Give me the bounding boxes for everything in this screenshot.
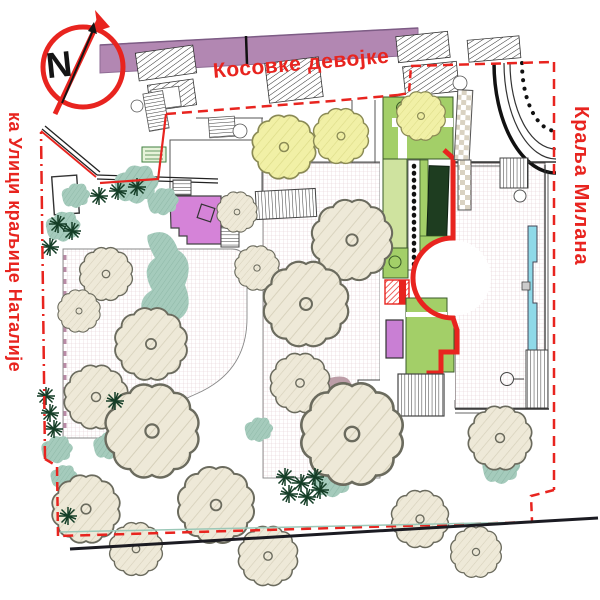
- street-label-right: Краља Милана: [569, 106, 592, 266]
- stairs: [526, 350, 548, 408]
- violet-bed: [386, 320, 403, 358]
- site-plan-drawing: [0, 0, 600, 600]
- column-dots: [522, 63, 556, 131]
- north-label: N: [44, 43, 74, 87]
- dark-hedge: [427, 166, 449, 237]
- stairs: [208, 116, 235, 138]
- colonnade-arc: [494, 63, 556, 173]
- stairs: [255, 188, 316, 219]
- site-plan-page: N Косовке девојке ка Улици краљице Натал…: [0, 0, 600, 600]
- paved-path: [454, 90, 473, 161]
- paved-path: [458, 160, 471, 210]
- stairs: [500, 158, 528, 188]
- stairs: [173, 180, 191, 195]
- street-label-left: ка Улици краљице Наталије: [4, 112, 25, 372]
- stairs: [398, 374, 444, 416]
